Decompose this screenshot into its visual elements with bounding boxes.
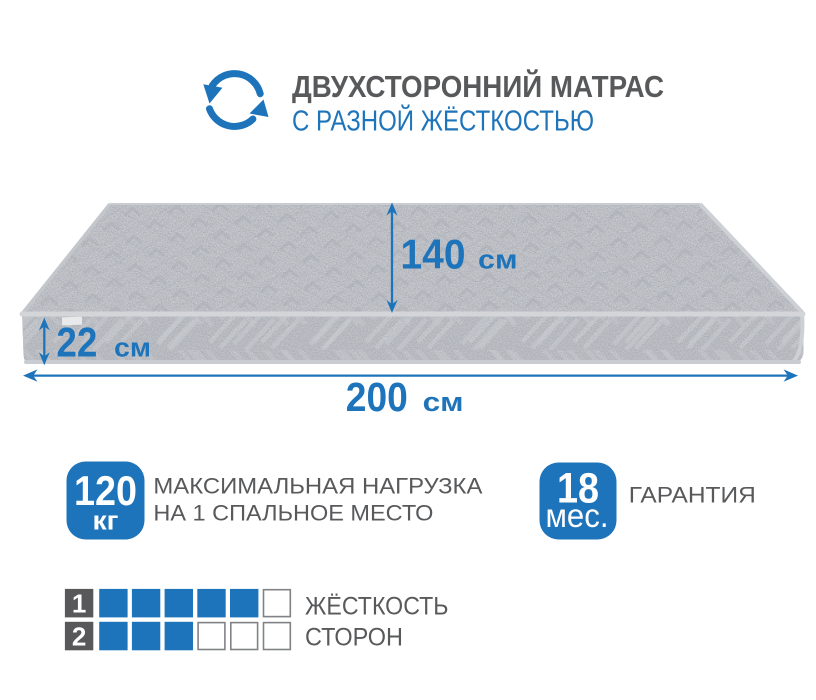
svg-text:ДВУХСТОРОННИЙ МАТРАС: ДВУХСТОРОННИЙ МАТРАС [292, 68, 664, 104]
svg-text:1: 1 [72, 589, 86, 619]
svg-text:МАКСИМАЛЬНАЯ НАГРУЗКА: МАКСИМАЛЬНАЯ НАГРУЗКА [153, 474, 482, 499]
svg-text:мес.: мес. [546, 497, 609, 534]
svg-text:см: см [478, 244, 518, 274]
svg-text:140: 140 [401, 230, 466, 277]
svg-text:200: 200 [346, 374, 408, 420]
svg-text:см: см [114, 332, 151, 362]
svg-text:22: 22 [56, 318, 97, 365]
svg-text:НА 1 СПАЛЬНОЕ МЕСТО: НА 1 СПАЛЬНОЕ МЕСТО [153, 500, 433, 525]
svg-text:ЖЁСТКОСТЬ: ЖЁСТКОСТЬ [305, 593, 449, 621]
svg-text:С РАЗНОЙ ЖЁСТКОСТЬЮ: С РАЗНОЙ ЖЁСТКОСТЬЮ [292, 103, 594, 137]
svg-text:см: см [423, 387, 464, 417]
svg-text:ГАРАНТИЯ: ГАРАНТИЯ [629, 483, 756, 508]
svg-text:2: 2 [72, 621, 86, 651]
svg-text:СТОРОН: СТОРОН [305, 623, 403, 651]
svg-text:кг: кг [93, 506, 119, 536]
